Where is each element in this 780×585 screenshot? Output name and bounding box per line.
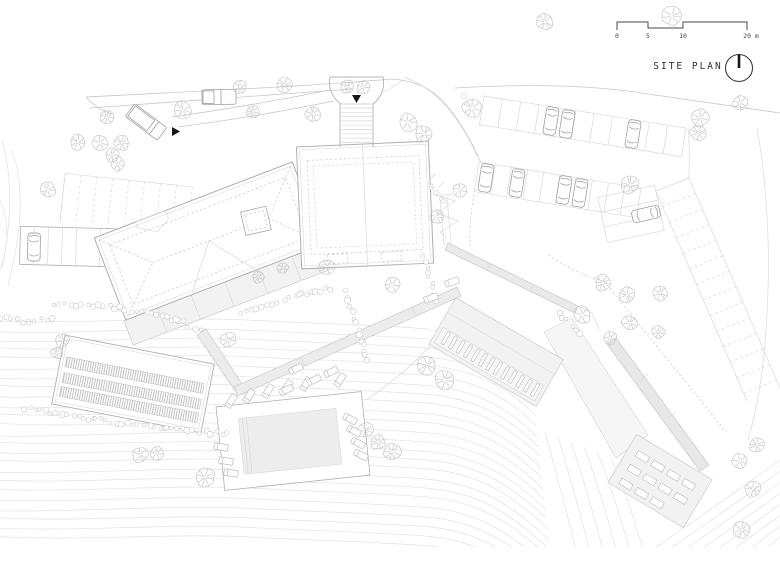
shrub-icon bbox=[275, 301, 279, 305]
tree-icon bbox=[277, 77, 292, 93]
shrub-icon bbox=[193, 327, 199, 333]
shrub-icon bbox=[215, 429, 219, 433]
tree-icon bbox=[92, 136, 108, 151]
car-icon bbox=[559, 109, 576, 139]
building-lower-left bbox=[52, 335, 215, 433]
shrub-icon bbox=[169, 426, 173, 430]
tree-icon bbox=[662, 6, 681, 25]
shrub-icon bbox=[87, 303, 91, 307]
shrub-icon bbox=[259, 304, 265, 310]
shrub-icon bbox=[425, 271, 430, 276]
entrance-arrow-right-icon bbox=[172, 127, 180, 136]
shrub-icon bbox=[424, 260, 429, 265]
car-icon bbox=[631, 205, 661, 224]
tree-icon bbox=[41, 182, 56, 197]
shrub-icon bbox=[27, 321, 31, 325]
shrub-icon bbox=[431, 285, 435, 289]
truck-icon bbox=[125, 104, 167, 141]
contour-line bbox=[0, 498, 553, 572]
shrub-icon bbox=[99, 416, 103, 420]
tree-icon bbox=[750, 438, 764, 452]
shrub-icon bbox=[33, 320, 36, 323]
lounger-icon bbox=[334, 372, 347, 387]
car-icon bbox=[556, 175, 573, 205]
tree-icon bbox=[385, 277, 400, 292]
tree-icon bbox=[596, 274, 611, 291]
shrub-icon bbox=[81, 417, 85, 421]
contour-line bbox=[712, 537, 780, 585]
shrub-icon bbox=[362, 352, 367, 357]
tree-icon bbox=[619, 287, 634, 303]
tree-icon bbox=[106, 148, 119, 162]
shrub-icon bbox=[181, 319, 186, 324]
shrub-icon bbox=[297, 292, 302, 297]
contour-line bbox=[545, 432, 584, 585]
shrub-icon bbox=[164, 314, 169, 319]
truck-icon bbox=[202, 89, 236, 105]
tree-icon bbox=[653, 286, 668, 301]
shrub-icon bbox=[269, 302, 274, 307]
tree-icon bbox=[621, 316, 638, 330]
tree-icon bbox=[453, 184, 466, 197]
car-icon bbox=[27, 233, 40, 261]
shrub-icon bbox=[305, 292, 310, 297]
shrub-icon bbox=[78, 302, 84, 308]
shrub-icon bbox=[21, 320, 26, 325]
car-icon bbox=[478, 163, 495, 193]
shrub-icon bbox=[93, 417, 97, 421]
shrub-icon bbox=[245, 309, 248, 312]
tree-icon bbox=[400, 113, 417, 132]
shrub-icon bbox=[63, 302, 66, 305]
lounger-icon bbox=[323, 366, 338, 378]
shrub-icon bbox=[431, 282, 434, 285]
shrub-icon bbox=[64, 412, 68, 416]
shrub-icon bbox=[103, 418, 106, 421]
contour-line bbox=[0, 536, 558, 585]
tree-icon bbox=[652, 326, 665, 339]
shrub-icon bbox=[48, 412, 52, 416]
shrub-icon bbox=[427, 267, 430, 270]
tree-icon bbox=[114, 135, 129, 150]
shrub-icon bbox=[164, 425, 169, 430]
shrub-icon bbox=[125, 420, 131, 426]
shrub-icon bbox=[21, 407, 27, 413]
shrub-icon bbox=[441, 199, 445, 203]
swimming-pool bbox=[238, 408, 341, 474]
shrub-icon bbox=[30, 406, 34, 410]
shrub-icon bbox=[119, 422, 125, 428]
shrub-icon bbox=[207, 431, 213, 437]
shrub-icon bbox=[345, 297, 351, 303]
scale-bar: 0 5 10 20 m bbox=[615, 22, 759, 40]
contour-line bbox=[680, 515, 780, 585]
tree-icon bbox=[691, 109, 710, 127]
shrub-icon bbox=[57, 303, 61, 307]
tree-icon bbox=[371, 435, 385, 449]
tree-icon bbox=[734, 521, 750, 538]
shrub-icon bbox=[49, 315, 55, 321]
shrub-icon bbox=[149, 311, 153, 315]
shrub-icon bbox=[312, 289, 318, 295]
tree-icon bbox=[690, 125, 707, 140]
shrub-icon bbox=[8, 317, 12, 321]
shrub-icon bbox=[38, 408, 41, 411]
contour-line bbox=[0, 200, 7, 270]
tree-icon bbox=[416, 126, 432, 142]
shrub-icon bbox=[253, 306, 259, 312]
shrub-icon bbox=[287, 295, 291, 299]
shrub-icon bbox=[135, 422, 139, 426]
plan-title: SITE PLAN bbox=[653, 61, 722, 72]
shrub-icon bbox=[577, 331, 583, 337]
lounger-icon bbox=[444, 277, 459, 288]
shrub-icon bbox=[571, 325, 575, 329]
tree-icon bbox=[732, 453, 747, 468]
car-icon bbox=[509, 168, 526, 198]
tree-icon bbox=[536, 14, 552, 30]
shrub-icon bbox=[152, 426, 155, 429]
shrub-icon bbox=[362, 342, 367, 347]
site-plan-canvas: 0 5 10 20 m SITE PLAN bbox=[0, 0, 780, 585]
contour-line bbox=[0, 517, 555, 585]
car-icon bbox=[572, 178, 589, 208]
shrub-icon bbox=[108, 303, 112, 307]
shrub-icon bbox=[174, 426, 179, 431]
scale-tick-label: 20 m bbox=[743, 32, 759, 40]
shrub-icon bbox=[328, 287, 333, 292]
tree-icon bbox=[220, 332, 236, 347]
lounger-icon bbox=[306, 374, 321, 386]
shrub-icon bbox=[356, 332, 362, 338]
shrub-icon bbox=[52, 303, 55, 306]
shrub-icon bbox=[283, 298, 288, 303]
tree-icon bbox=[234, 80, 247, 93]
tree-icon bbox=[196, 468, 214, 487]
shrub-icon bbox=[73, 414, 77, 418]
entrance-arrow-down-icon bbox=[352, 95, 361, 103]
shrub-icon bbox=[53, 411, 58, 416]
car-icon bbox=[625, 119, 642, 149]
shrub-icon bbox=[430, 187, 433, 190]
shrub-icon bbox=[0, 316, 3, 321]
shrub-icon bbox=[189, 427, 195, 433]
shrub-icon bbox=[224, 430, 229, 435]
shrub-icon bbox=[324, 286, 328, 290]
shrub-icon bbox=[427, 275, 430, 278]
car-icon bbox=[543, 106, 560, 136]
shrub-icon bbox=[239, 311, 243, 315]
scale-tick-label: 5 bbox=[646, 32, 650, 40]
scale-tick-label: 10 bbox=[679, 32, 687, 40]
shrub-icon bbox=[343, 288, 348, 293]
entrance-stairs bbox=[329, 77, 383, 147]
shrub-icon bbox=[364, 358, 369, 363]
shrub-icon bbox=[40, 317, 43, 320]
contour-line bbox=[8, 150, 20, 285]
contour-line bbox=[0, 487, 552, 560]
tree-icon bbox=[745, 481, 761, 497]
shrub-icon bbox=[347, 304, 352, 309]
tree-icon bbox=[357, 81, 370, 94]
building-central bbox=[296, 141, 433, 269]
contour-line bbox=[0, 478, 550, 550]
shrub-icon bbox=[86, 418, 91, 423]
shrub-icon bbox=[135, 310, 139, 314]
shrub-icon bbox=[353, 320, 359, 326]
tree-icon bbox=[305, 107, 321, 122]
scale-tick-label: 0 bbox=[615, 32, 619, 40]
shrub-icon bbox=[142, 424, 146, 428]
shrub-icon bbox=[434, 190, 439, 195]
parking-strip-diagonal bbox=[656, 178, 780, 401]
shrub-icon bbox=[130, 310, 134, 314]
shrub-icon bbox=[185, 325, 189, 329]
shrub-icon bbox=[200, 328, 203, 331]
terrace-roof bbox=[544, 318, 648, 458]
building-louvered bbox=[429, 298, 563, 407]
shrub-icon bbox=[15, 316, 20, 321]
shrub-icon bbox=[197, 432, 201, 436]
shrub-icon bbox=[350, 309, 356, 315]
shrub-icon bbox=[557, 310, 563, 316]
shrub-icon bbox=[154, 312, 159, 317]
shrub-icon bbox=[421, 254, 425, 258]
contour-line bbox=[0, 526, 556, 585]
shrub-icon bbox=[140, 309, 144, 313]
pool-deck bbox=[216, 392, 370, 491]
shrub-icon bbox=[564, 317, 567, 320]
tree-icon bbox=[150, 446, 163, 460]
shrub-icon bbox=[122, 308, 127, 313]
shrub-icon bbox=[559, 316, 564, 321]
shrub-icon bbox=[100, 304, 105, 309]
north-arrow-icon bbox=[726, 55, 753, 82]
shrub-icon bbox=[108, 421, 112, 425]
tree-icon bbox=[462, 99, 482, 117]
lounger-icon bbox=[262, 383, 275, 398]
shrub-icon bbox=[318, 289, 324, 295]
parking-row bbox=[479, 96, 686, 157]
shrub-icon bbox=[173, 316, 179, 322]
tree-icon bbox=[71, 134, 85, 150]
